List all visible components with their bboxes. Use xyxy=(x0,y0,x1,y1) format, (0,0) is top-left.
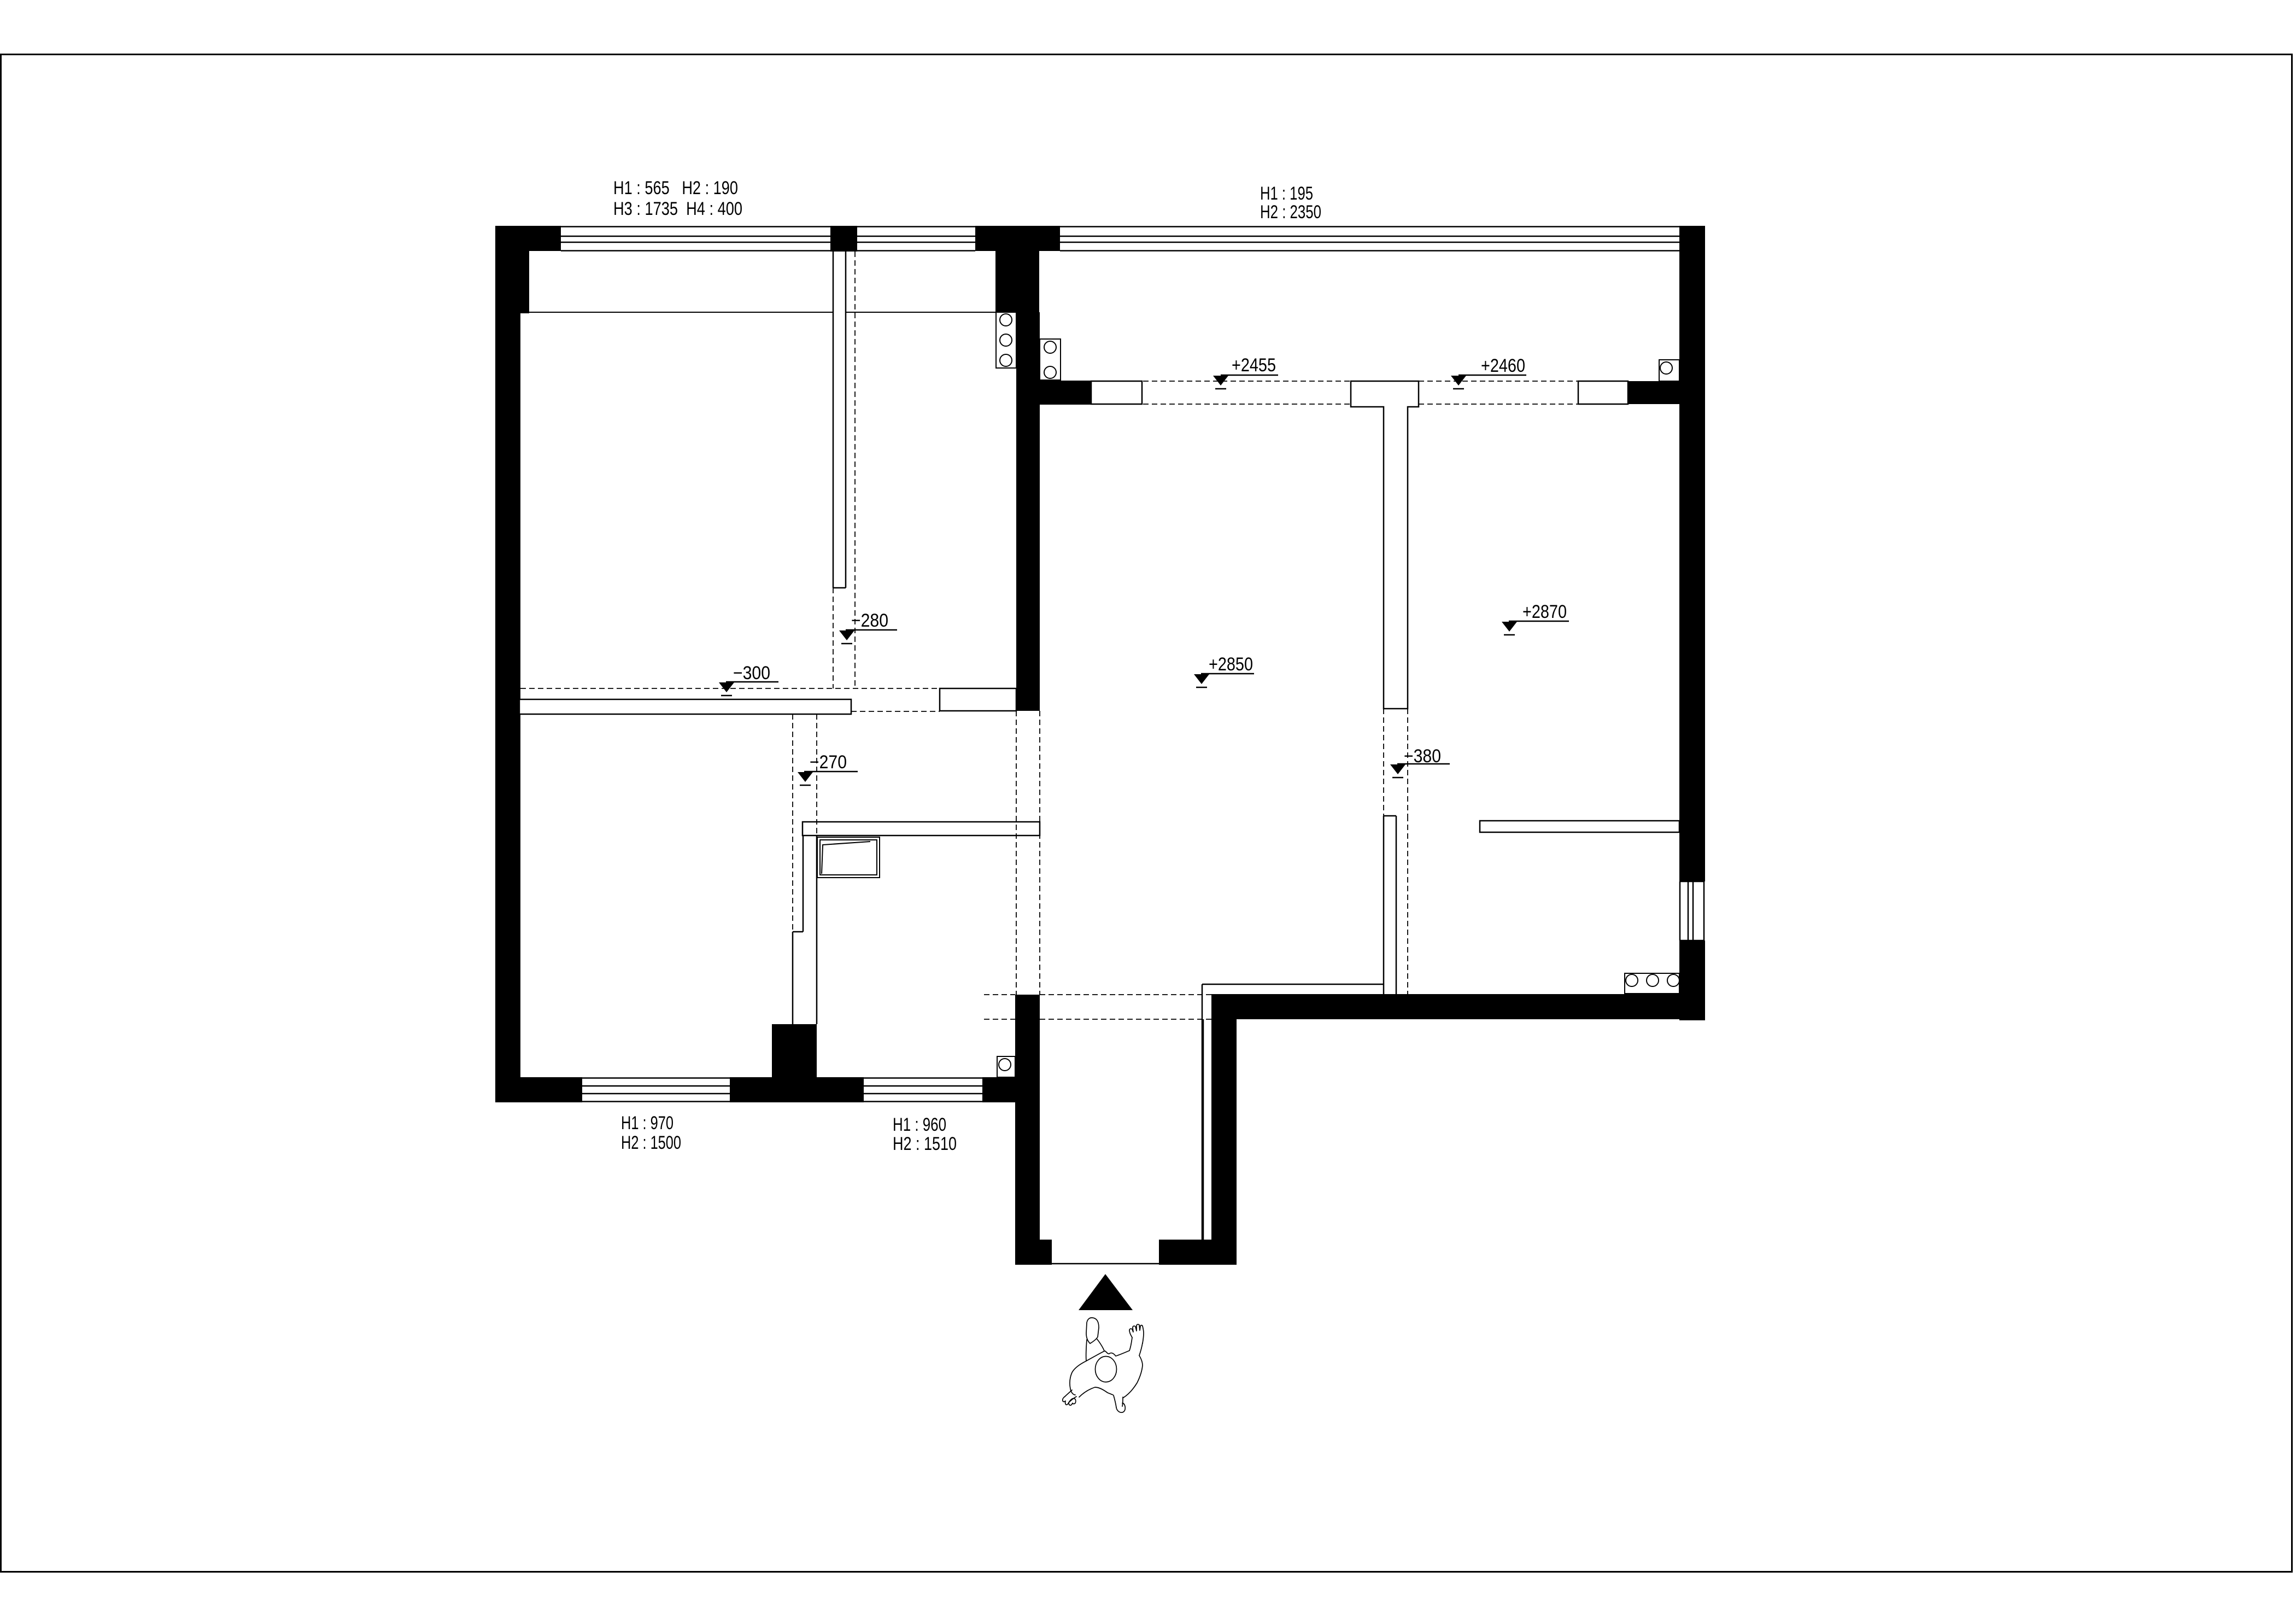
svg-text:H1 : 970: H1 : 970 xyxy=(621,1113,673,1134)
svg-text:+2870: +2870 xyxy=(1522,601,1567,622)
svg-text:−270: −270 xyxy=(810,752,847,773)
svg-text:H1 : 960: H1 : 960 xyxy=(893,1114,946,1135)
svg-text:H1 : 195: H1 : 195 xyxy=(1260,183,1313,204)
svg-text:−280: −280 xyxy=(851,610,888,631)
svg-text:+2850: +2850 xyxy=(1209,654,1253,675)
svg-text:H2 : 1510: H2 : 1510 xyxy=(893,1134,957,1154)
svg-text:H2 : 2350: H2 : 2350 xyxy=(1260,202,1321,223)
svg-text:H1 : 565 H2 : 190: H1 : 565 H2 : 190 xyxy=(613,178,738,198)
svg-text:+2455: +2455 xyxy=(1232,355,1276,376)
svg-text:H2 : 1500: H2 : 1500 xyxy=(621,1132,681,1153)
svg-text:+2460: +2460 xyxy=(1481,355,1525,376)
svg-text:H3 : 1735 H4 : 400: H3 : 1735 H4 : 400 xyxy=(613,198,742,219)
svg-text:−300: −300 xyxy=(733,663,770,684)
